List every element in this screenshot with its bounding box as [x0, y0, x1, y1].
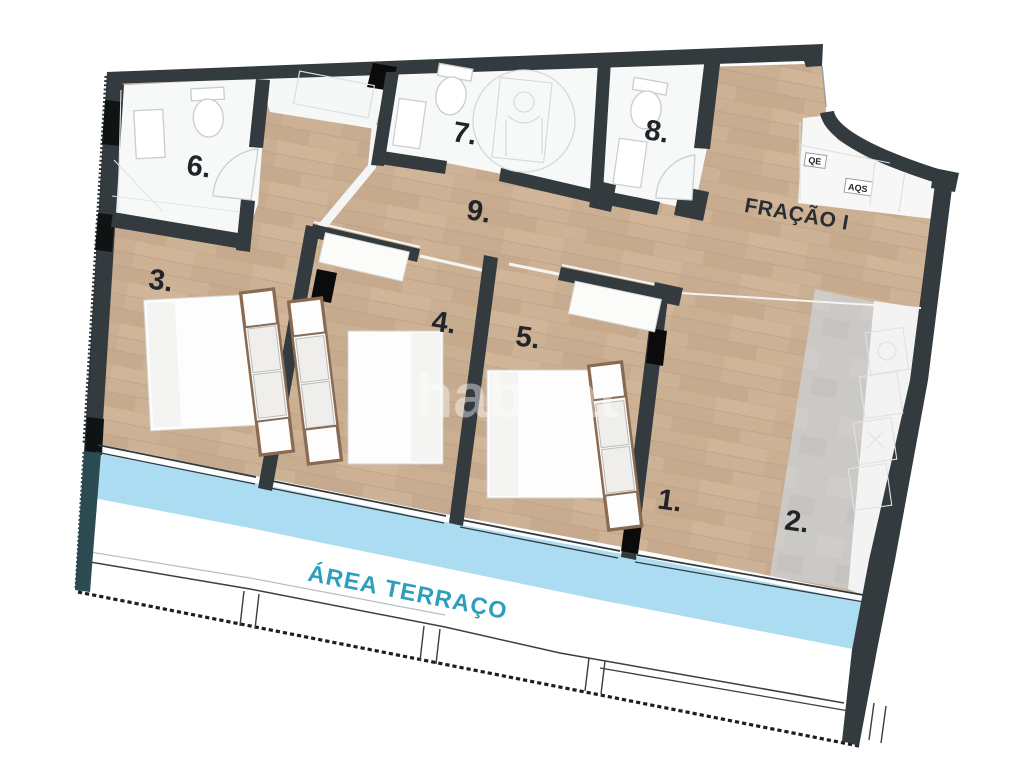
svg-text:6.: 6. [185, 149, 213, 184]
svg-text:4.: 4. [430, 305, 458, 340]
svg-text:3.: 3. [147, 263, 175, 298]
svg-text:2.: 2. [783, 504, 811, 539]
svg-text:QE: QE [808, 155, 822, 167]
svg-text:5.: 5. [514, 320, 542, 355]
svg-text:habitat: habitat [415, 362, 618, 431]
svg-text:1.: 1. [656, 483, 684, 518]
